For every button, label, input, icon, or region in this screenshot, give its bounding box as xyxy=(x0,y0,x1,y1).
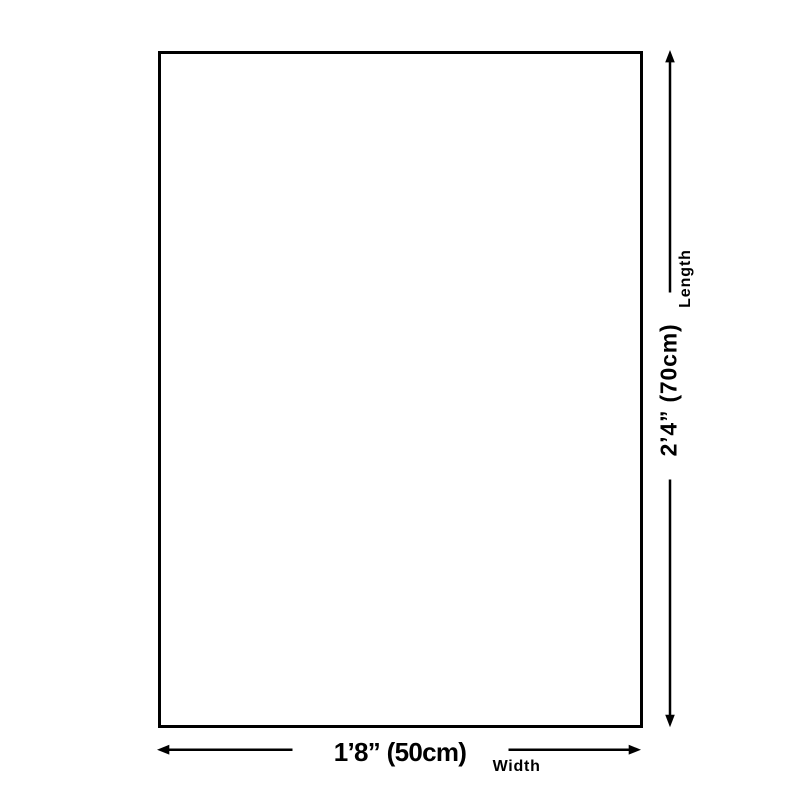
svg-text:1’8” (50cm): 1’8” (50cm) xyxy=(334,737,467,767)
svg-text:Length: Length xyxy=(677,249,694,308)
svg-text:2’4” (70cm): 2’4” (70cm) xyxy=(656,324,682,457)
svg-text:Width: Width xyxy=(493,758,541,775)
